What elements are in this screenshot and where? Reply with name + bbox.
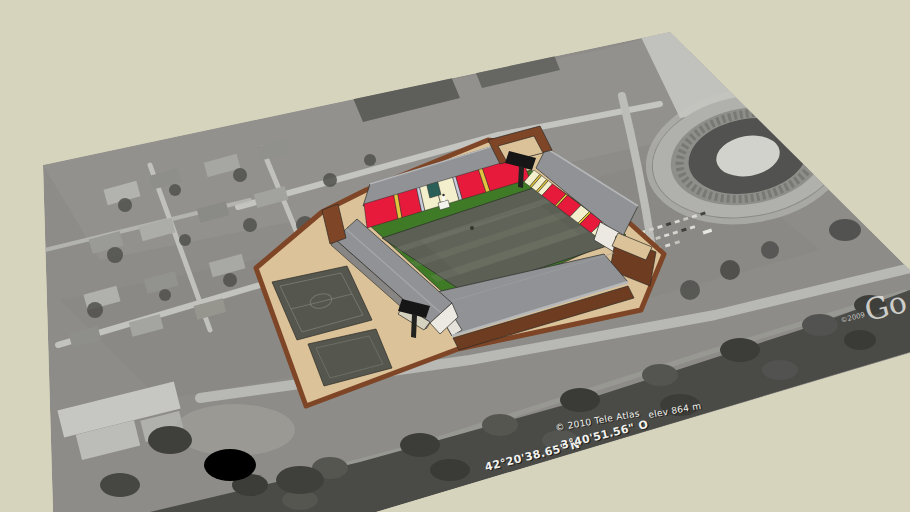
pitch-center-dot (470, 226, 474, 230)
figure (442, 194, 445, 201)
3d-viewport[interactable]: © 2010 Tele Atlas © 2010 Tele Atlas elev… (0, 0, 910, 512)
